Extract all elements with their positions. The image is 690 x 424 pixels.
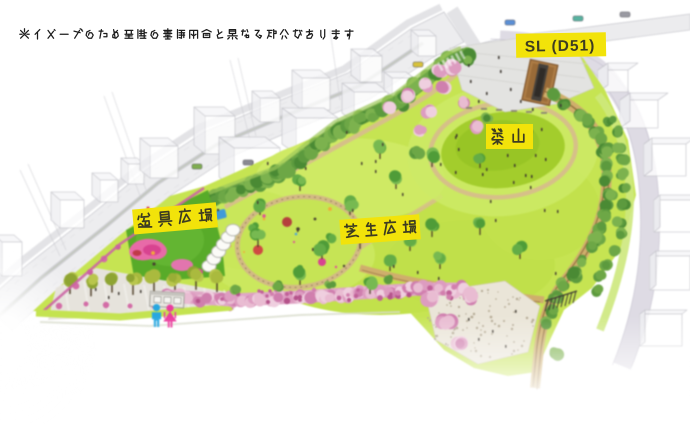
svg-text:SL (D51): SL (D51) [525, 37, 596, 55]
